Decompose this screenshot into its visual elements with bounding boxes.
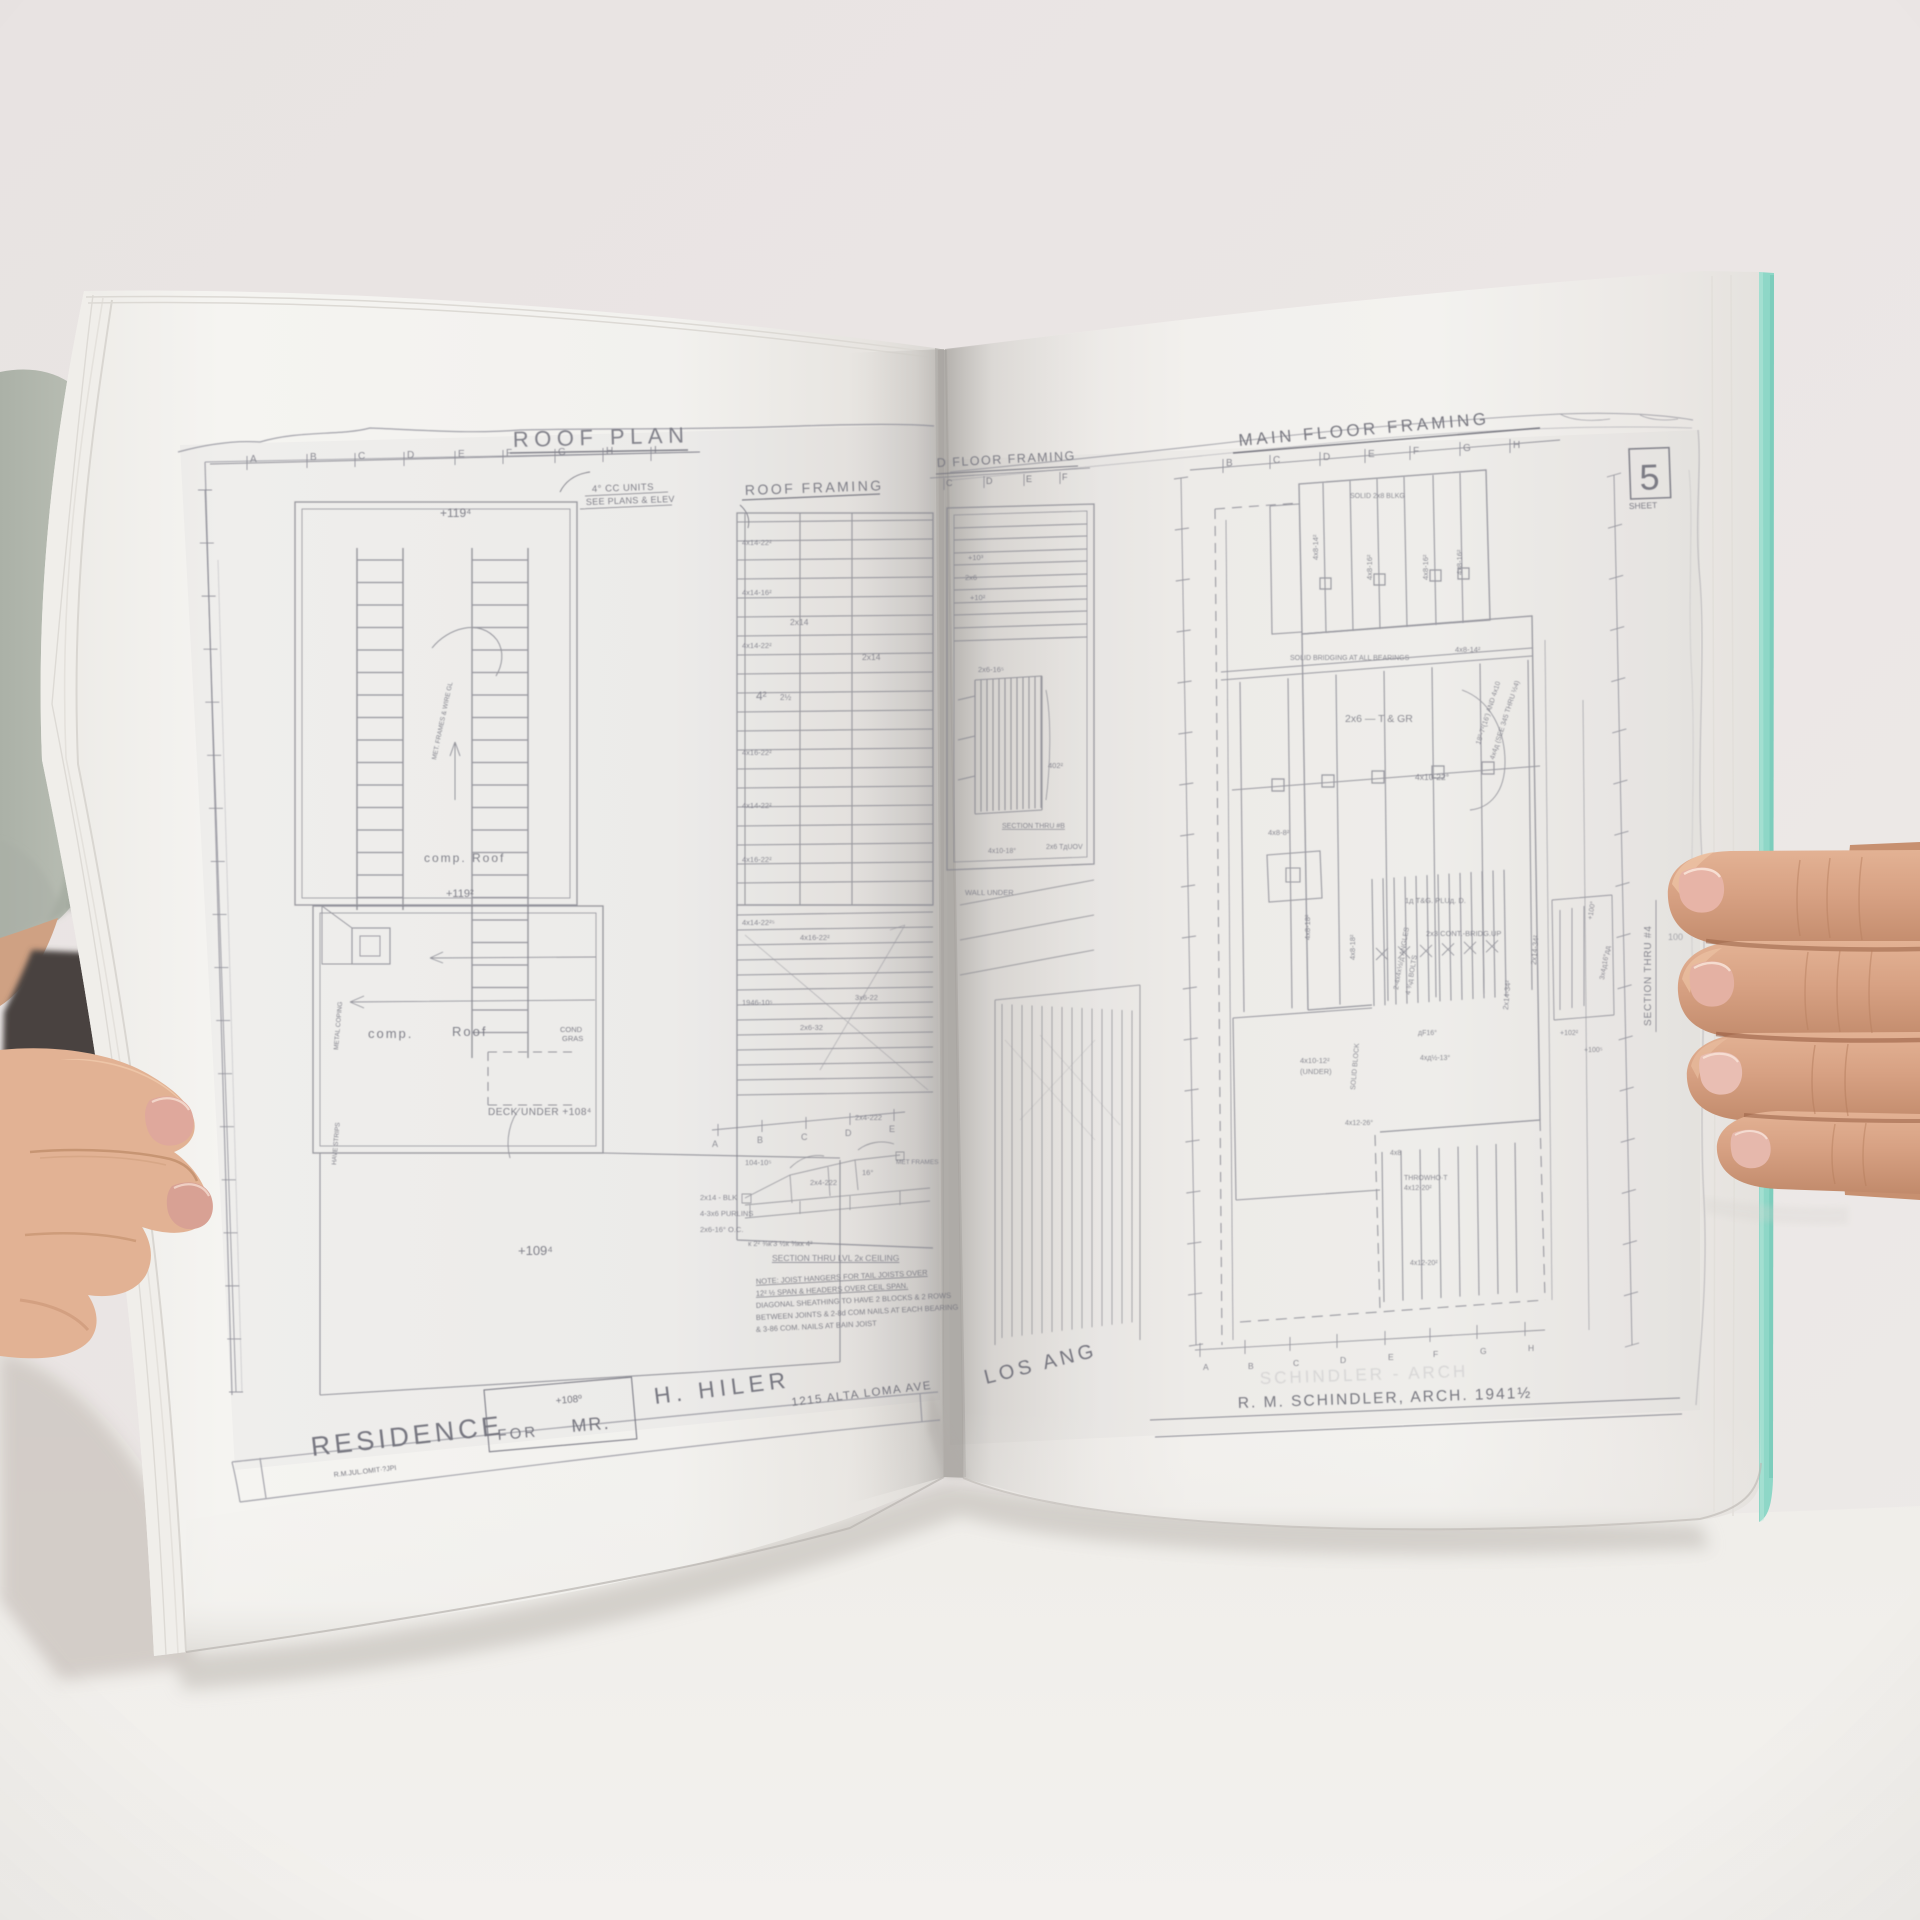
svg-text:4x16-22²: 4x16-22² — [742, 748, 772, 757]
svg-text:4x10-12²: 4x10-12² — [1300, 1056, 1330, 1065]
svg-text:+100⁵: +100⁵ — [1584, 1047, 1603, 1054]
svg-text:4xд½-13°: 4xд½-13° — [1420, 1054, 1450, 1062]
svg-text:F: F — [1413, 446, 1419, 457]
svg-text:4x8-14²: 4x8-14² — [1311, 534, 1320, 560]
svg-text:3x6-22: 3x6-22 — [855, 993, 878, 1002]
svg-text:COND: COND — [560, 1025, 583, 1034]
svg-text:104-10⁵: 104-10⁵ — [745, 1158, 771, 1167]
svg-text:D: D — [986, 476, 993, 486]
svg-text:2x6 — T & GR: 2x6 — T & GR — [1345, 713, 1413, 725]
svg-text:2x6-32: 2x6-32 — [800, 1023, 823, 1032]
svg-text:402²: 402² — [1048, 761, 1064, 770]
svg-text:4x12-20²: 4x12-20² — [1410, 1260, 1438, 1267]
svg-text:H: H — [606, 446, 613, 457]
svg-text:+102²: +102² — [1560, 1030, 1579, 1037]
svg-text:4x8-18²: 4x8-18² — [1348, 934, 1357, 960]
svg-text:B: B — [1226, 458, 1233, 469]
svg-text:2x6-16° O.C.: 2x6-16° O.C. — [700, 1225, 743, 1234]
svg-text:C: C — [358, 451, 365, 462]
svg-text:4x16-22²: 4x16-22² — [800, 933, 830, 942]
svg-text:SECTION THRU LVL 2к CEILING: SECTION THRU LVL 2к CEILING — [772, 1253, 899, 1263]
svg-text:SOLID BRIDGING AT ALL BEARINGS: SOLID BRIDGING AT ALL BEARINGS — [1290, 655, 1410, 662]
svg-text:C: C — [1273, 455, 1280, 466]
svg-text:+109⁴: +109⁴ — [518, 1243, 553, 1258]
svg-text:E: E — [1026, 474, 1032, 484]
svg-text:D: D — [407, 450, 414, 461]
svg-text:D: D — [845, 1128, 852, 1138]
svg-text:DECK UNDER +108⁴: DECK UNDER +108⁴ — [488, 1107, 592, 1118]
svg-text:(UNDER): (UNDER) — [1300, 1067, 1332, 1076]
svg-text:4x14-22²: 4x14-22² — [742, 641, 772, 650]
svg-text:B: B — [757, 1135, 763, 1145]
svg-text:E: E — [1388, 1352, 1394, 1362]
svg-text:4x14-22²⁵: 4x14-22²⁵ — [742, 918, 775, 927]
svg-text:D: D — [1323, 452, 1330, 463]
svg-text:+108º: +108º — [555, 1394, 582, 1407]
svg-text:4x8-8²: 4x8-8² — [1268, 828, 1290, 837]
svg-text:E: E — [1368, 449, 1375, 460]
svg-text:FOR: FOR — [497, 1424, 539, 1444]
svg-text:2x3 CONT.-BRIDG.UP: 2x3 CONT.-BRIDG.UP — [1426, 929, 1501, 938]
svg-text:H: H — [1528, 1343, 1534, 1353]
svg-text:A: A — [250, 454, 257, 465]
svg-text:+10³: +10³ — [968, 553, 984, 562]
svg-text:4x14-16²: 4x14-16² — [742, 588, 772, 597]
svg-text:+119⁴: +119⁴ — [440, 506, 471, 520]
svg-text:к 2² ⅜к'3 ½к ⅜кк 4²: к 2² ⅜к'3 ½к ⅜кк 4² — [748, 1239, 813, 1248]
svg-text:4x12-26°: 4x12-26° — [1345, 1119, 1373, 1127]
svg-text:2x6: 2x6 — [965, 573, 977, 582]
svg-text:4x8-16²: 4x8-16² — [1365, 554, 1374, 580]
svg-text:A: A — [1203, 1362, 1209, 1372]
svg-text:G: G — [1463, 443, 1471, 454]
svg-text:2x4-222: 2x4-222 — [810, 1178, 837, 1187]
svg-text:F: F — [1062, 472, 1068, 482]
svg-text:MET FRAMES: MET FRAMES — [896, 1159, 939, 1166]
svg-text:4x10-18°: 4x10-18° — [988, 847, 1016, 855]
svg-text:D: D — [1340, 1355, 1346, 1365]
svg-text:F: F — [506, 448, 512, 459]
svg-text:дF16°: дF16° — [1418, 1029, 1437, 1037]
svg-text:16°: 16° — [862, 1168, 873, 1177]
svg-text:C: C — [946, 478, 953, 488]
svg-text:4x14-22²: 4x14-22² — [742, 801, 772, 810]
svg-text:G: G — [558, 447, 566, 458]
svg-text:2x14: 2x14 — [790, 617, 809, 627]
svg-text:2x6-16⁵: 2x6-16⁵ — [978, 665, 1004, 674]
svg-text:1946-10⁵: 1946-10⁵ — [742, 998, 773, 1007]
svg-text:+119²: +119² — [446, 888, 474, 900]
svg-text:B: B — [310, 452, 317, 463]
svg-text:ROOF PLAN: ROOF PLAN — [512, 422, 689, 452]
svg-text:2x14 - BLK: 2x14 - BLK — [700, 1193, 737, 1202]
svg-text:4-3x6 PURLINS: 4-3x6 PURLINS — [700, 1209, 753, 1218]
svg-text:5: 5 — [1639, 456, 1660, 498]
svg-text:1д T&G. PLUд. D.: 1д T&G. PLUд. D. — [1405, 896, 1466, 905]
svg-text:4²: 4² — [756, 689, 767, 703]
svg-text:4x12-20²: 4x12-20² — [1404, 1185, 1432, 1192]
svg-text:I: I — [654, 445, 657, 456]
svg-text:comp. Roof: comp. Roof — [424, 851, 505, 865]
svg-text:comp.: comp. — [368, 1026, 413, 1041]
svg-text:4x14-22²: 4x14-22² — [742, 538, 772, 547]
svg-text:+10²: +10² — [970, 593, 986, 602]
svg-text:G: G — [1480, 1346, 1487, 1356]
svg-text:SECTION THRU #B: SECTION THRU #B — [1002, 823, 1065, 830]
svg-text:B: B — [1248, 1361, 1254, 1371]
svg-text:2½: 2½ — [780, 693, 791, 702]
svg-text:4x16-22²: 4x16-22² — [742, 855, 772, 864]
svg-text:4x8: 4x8 — [1390, 1150, 1401, 1157]
svg-text:4x8-18²: 4x8-18² — [1303, 914, 1312, 940]
svg-text:E: E — [458, 449, 465, 460]
svg-text:F: F — [1433, 1349, 1438, 1359]
svg-text:4x8-16²: 4x8-16² — [1455, 549, 1464, 575]
svg-text:4x10-22°: 4x10-22° — [1415, 772, 1449, 782]
svg-text:THROWHO·T: THROWHO·T — [1404, 1175, 1448, 1182]
svg-text:2x14: 2x14 — [862, 652, 881, 662]
svg-text:GRAS: GRAS — [562, 1034, 583, 1043]
svg-text:SHEET: SHEET — [1629, 500, 1658, 511]
svg-text:2x6 TдUOV: 2x6 TдUOV — [1046, 844, 1083, 851]
svg-text:Roof: Roof — [452, 1024, 487, 1039]
svg-text:SECTION THRU #4: SECTION THRU #4 — [1643, 925, 1654, 1026]
svg-text:E: E — [889, 1124, 895, 1134]
svg-text:A: A — [712, 1139, 718, 1149]
svg-text:MR.: MR. — [571, 1413, 612, 1436]
svg-text:4x8-14²: 4x8-14² — [1455, 645, 1481, 654]
svg-text:WALL UNDER: WALL UNDER — [965, 888, 1014, 897]
svg-text:C: C — [1293, 1358, 1299, 1368]
svg-text:4x8-16²: 4x8-16² — [1421, 554, 1430, 580]
svg-text:100: 100 — [1668, 932, 1683, 942]
svg-text:C: C — [801, 1132, 808, 1142]
svg-text:SOLID 2x8 BLKG: SOLID 2x8 BLKG — [1350, 493, 1405, 500]
svg-text:H: H — [1513, 440, 1520, 451]
